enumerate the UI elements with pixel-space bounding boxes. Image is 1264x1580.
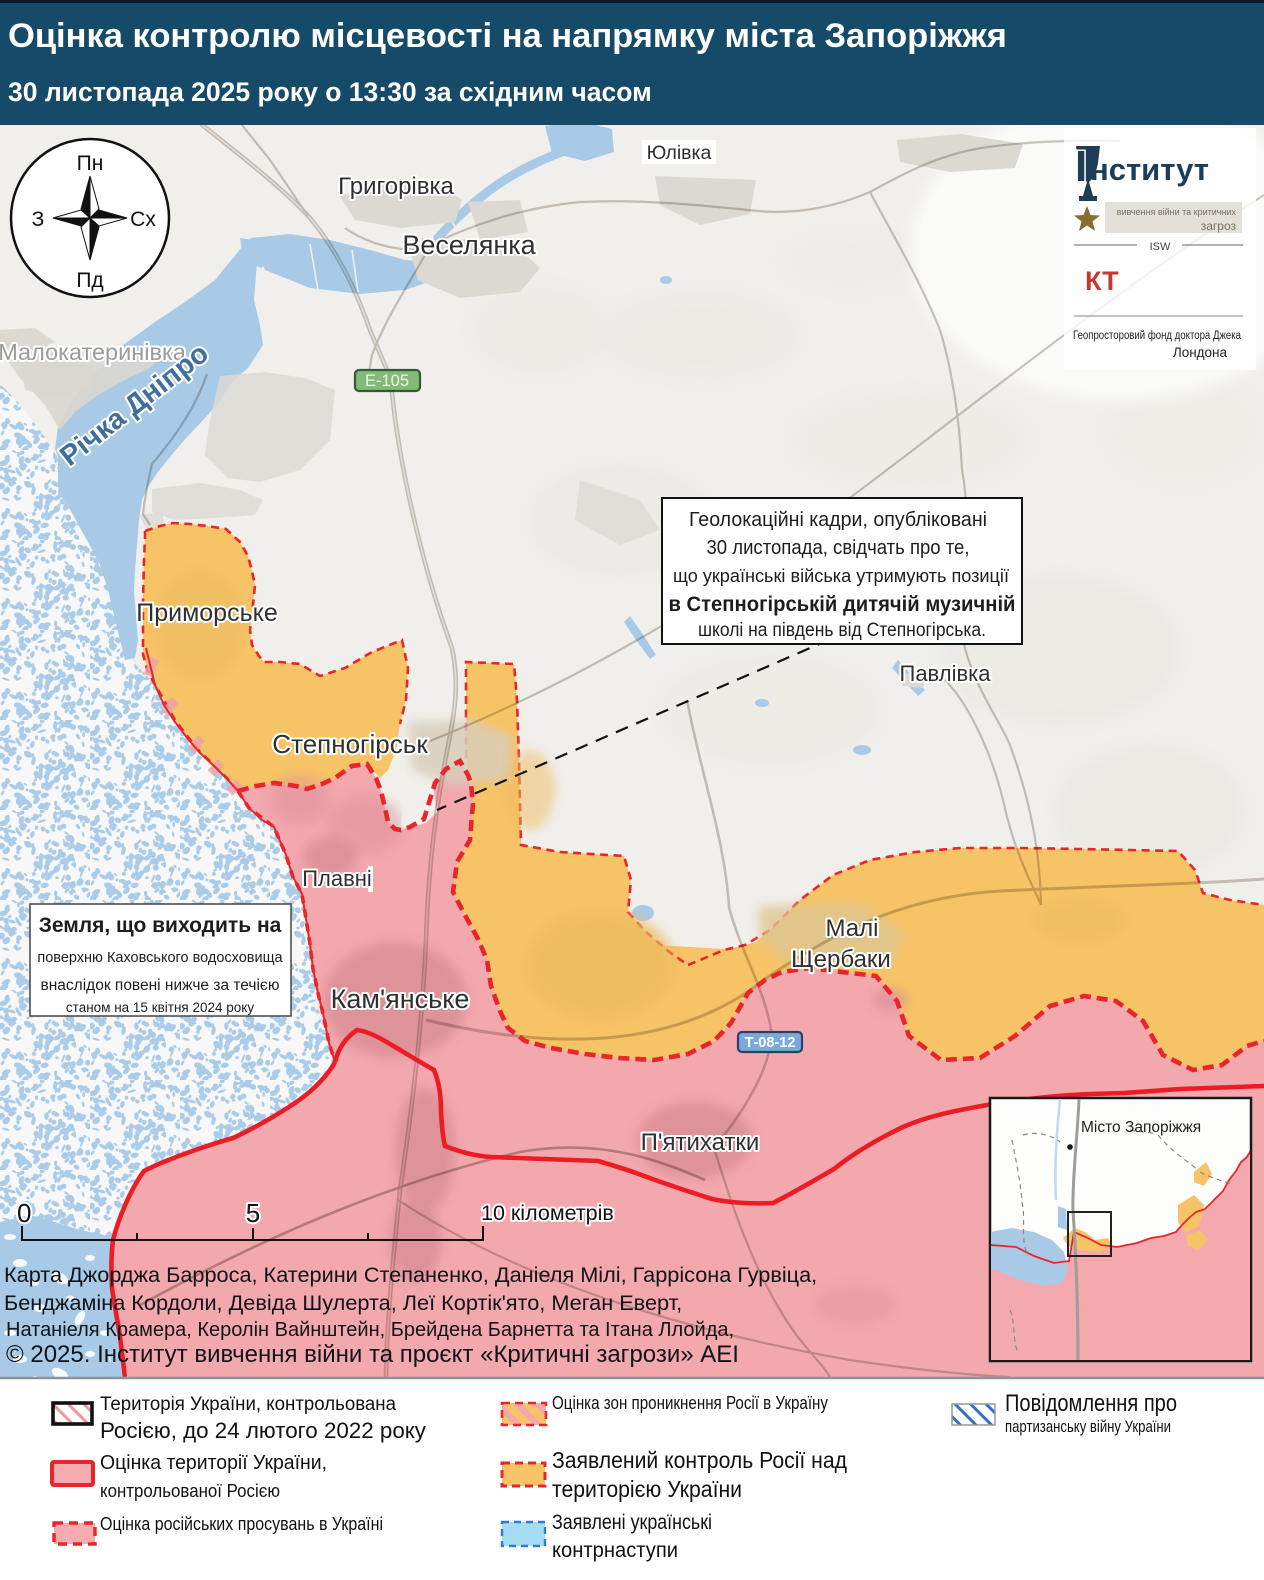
svg-text:Лондона: Лондона (1173, 345, 1228, 360)
svg-text:Оцінка зон проникнення Росії в: Оцінка зон проникнення Росії в Україну (552, 1393, 828, 1413)
svg-text:внаслідок повені нижче за течі: внаслідок повені нижче за течією (41, 977, 280, 994)
svg-text:територією України: територією України (552, 1476, 742, 1502)
svg-text:Плавні: Плавні (302, 866, 372, 891)
svg-text:І: І (1075, 142, 1087, 191)
svg-text:Приморське: Приморське (136, 599, 277, 627)
svg-text:Бенджаміна Кордоли, Девіда Шул: Бенджаміна Кордоли, Девіда Шулерта, Леї … (4, 1290, 682, 1315)
svg-text:партизанську війну України: партизанську війну України (1005, 1418, 1171, 1436)
svg-text:5: 5 (246, 1198, 260, 1228)
svg-text:контрнаступи: контрнаступи (552, 1539, 678, 1562)
svg-text:Карта Джорджа Барроса, Катерин: Карта Джорджа Барроса, Катерини Степанен… (4, 1262, 817, 1287)
svg-text:© 2025. Інститут вивчення війн: © 2025. Інститут вивчення війни та проєк… (6, 1341, 739, 1368)
svg-text:школі на південь від Степногір: школі на південь від Степногірська. (698, 620, 986, 641)
svg-text:Натаніеля Крамера, Керолін Вай: Натаніеля Крамера, Керолін Вайнштейн, Бр… (6, 1319, 734, 1341)
svg-text:Місто Запоріжжя: Місто Запоріжжя (1081, 1119, 1201, 1136)
svg-text:що українські війська утримуют: що українські війська утримують позиції (673, 566, 1009, 586)
svg-text:10 кілометрів: 10 кілометрів (481, 1201, 614, 1225)
svg-text:Заявлені українські: Заявлені українські (552, 1511, 712, 1534)
svg-text:КТ: КТ (1085, 266, 1119, 296)
svg-text:Малі: Малі (826, 915, 879, 942)
svg-text:нститут: нститут (1090, 152, 1209, 187)
svg-text:Оцінка території України,: Оцінка території України, (100, 1451, 327, 1474)
svg-text:Оцінка контролю місцевості на: Оцінка контролю місцевості на напрямку м… (8, 17, 1007, 55)
svg-text:Територія України, контрольова: Територія України, контрольована (100, 1394, 396, 1415)
svg-text:Веселянка: Веселянка (402, 230, 536, 260)
svg-text:Степногірськ: Степногірськ (272, 729, 428, 759)
svg-text:Геопросторовий фонд доктора Дж: Геопросторовий фонд доктора Джека (1073, 330, 1242, 342)
svg-text:загроз: загроз (1201, 219, 1237, 233)
svg-text:Заявлений контроль Росії над: Заявлений контроль Росії над (552, 1447, 847, 1473)
svg-text:вивчення війни та критичних: вивчення війни та критичних (1117, 207, 1237, 217)
svg-text:Григорівка: Григорівка (338, 173, 454, 200)
svg-text:Росією, до 24 лютого 2022 року: Росією, до 24 лютого 2022 року (100, 1418, 426, 1443)
svg-text:Земля, що виходить на: Земля, що виходить на (39, 914, 282, 937)
svg-text:З: З (32, 208, 45, 231)
svg-text:Повідомлення про: Повідомлення про (1005, 1390, 1177, 1417)
svg-text:П'ятихатки: П'ятихатки (641, 1129, 760, 1156)
svg-text:ISW: ISW (1150, 241, 1171, 253)
svg-text:Оцінка російських просувань в: Оцінка російських просувань в Україні (100, 1514, 383, 1534)
svg-text:Щербаки: Щербаки (791, 946, 891, 973)
svg-text:Юлівка: Юлівка (647, 142, 712, 164)
svg-text:Пн: Пн (77, 152, 104, 175)
svg-text:30 листопада, свідчать про те,: 30 листопада, свідчать про те, (707, 536, 970, 559)
svg-text:в Степногірській дитячій музич: в Степногірській дитячій музичній (669, 592, 1016, 616)
svg-text:Павлівка: Павлівка (900, 661, 992, 686)
svg-text:Т-08-12: Т-08-12 (745, 1035, 796, 1051)
svg-text:контрольованої Росією: контрольованої Росією (100, 1480, 280, 1501)
svg-text:Пд: Пд (76, 269, 103, 292)
svg-text:Кам'янське: Кам'янське (331, 984, 470, 1014)
svg-text:Сх: Сх (130, 208, 156, 231)
svg-text:поверхню Каховського водосхови: поверхню Каховського водосховища (37, 950, 283, 966)
svg-text:станом на 15 квітня 2024 року: станом на 15 квітня 2024 року (66, 1000, 254, 1015)
svg-text:30 листопада 2025 року о 13:30: 30 листопада 2025 року о 13:30 за східни… (8, 77, 652, 107)
svg-text:Малокатеринівка: Малокатеринівка (0, 339, 187, 365)
svg-text:Е-105: Е-105 (365, 372, 409, 390)
svg-text:Геолокаційні кадри, опублікова: Геолокаційні кадри, опубліковані (689, 508, 987, 531)
svg-text:0: 0 (17, 1198, 31, 1228)
